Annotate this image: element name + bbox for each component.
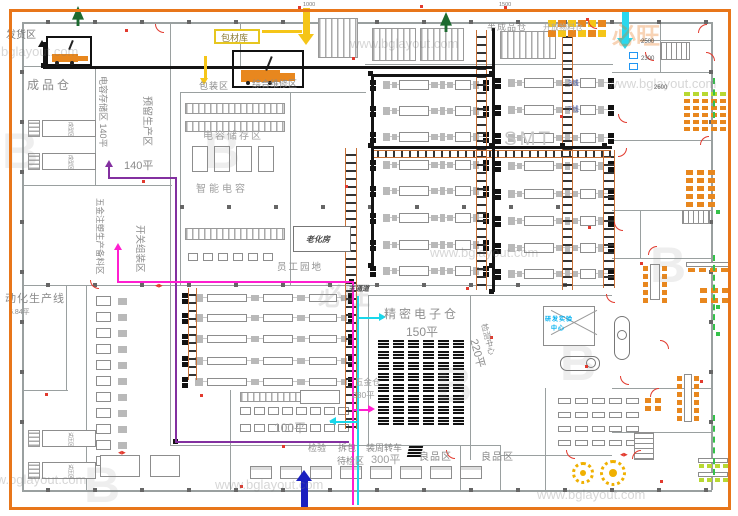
smt-machine	[392, 268, 397, 274]
green-dashed-line	[713, 415, 717, 475]
training-desk	[609, 440, 622, 446]
zone-label-open-material: 开放物料仓	[543, 24, 583, 32]
furniture-seat	[720, 92, 726, 96]
flow-node	[368, 143, 373, 148]
flow-line-black	[371, 74, 374, 267]
furniture-seat	[720, 127, 726, 131]
smt-machine	[383, 187, 390, 195]
storage-box	[423, 351, 434, 359]
feeder-cart	[495, 195, 501, 200]
feeder-cart	[495, 133, 501, 138]
wall-segment	[22, 22, 712, 24]
machine-block	[188, 253, 198, 261]
conveyor-strip	[371, 150, 611, 158]
smt-machine	[517, 191, 522, 197]
valve-marker: ◀▶	[620, 452, 630, 458]
storage-box	[423, 395, 434, 403]
door-arc-icon	[90, 280, 99, 289]
smt-machine	[392, 242, 397, 248]
storage-box	[378, 395, 389, 403]
arrow-icon	[368, 405, 379, 413]
pallet-icon	[460, 466, 482, 479]
machine-unit-label: 成型区	[60, 155, 74, 165]
smt-machine	[440, 214, 445, 222]
column-marker	[93, 20, 97, 24]
wall-segment	[612, 72, 712, 73]
storage-box	[408, 417, 419, 425]
storage-box	[393, 351, 404, 359]
door-arc-icon	[618, 114, 627, 123]
storage-box	[393, 395, 404, 403]
smt-machine	[455, 266, 471, 276]
wall-segment	[180, 92, 181, 285]
zone-label-capacitor-store: 电容储存区	[203, 132, 263, 142]
assembly-machine	[207, 357, 247, 365]
flow-node	[489, 143, 494, 148]
smt-machine	[399, 213, 429, 223]
watermark-url: www.bglayout.com	[0, 44, 170, 60]
furniture-seat	[707, 478, 712, 482]
red-marker	[345, 185, 348, 188]
door-arc-icon	[155, 24, 164, 33]
zone-label-smt: SMT	[504, 130, 553, 149]
smt-machine	[508, 190, 515, 198]
column-marker	[556, 205, 560, 209]
assembly-machine	[309, 378, 337, 386]
smt-machine	[447, 134, 453, 140]
valve-marker: ◀▶	[155, 283, 165, 289]
door-arc-icon	[620, 376, 629, 385]
forklift-icon	[70, 61, 74, 65]
furniture-seat	[677, 392, 682, 397]
stairs-icon	[682, 210, 710, 224]
flow-node	[489, 263, 494, 268]
zone-label-inspection: 检验	[308, 444, 326, 453]
smt-machine	[392, 215, 397, 221]
machine-block	[118, 394, 127, 401]
furniture-seat	[677, 376, 682, 381]
red-marker	[585, 365, 588, 368]
door-arc-icon	[606, 294, 615, 303]
column-marker	[321, 205, 325, 209]
training-desk	[575, 412, 588, 418]
worktable	[254, 424, 265, 432]
storage-box	[408, 406, 419, 414]
furniture-seat	[694, 392, 699, 397]
furniture-seat	[720, 120, 726, 124]
storage-box	[378, 351, 389, 359]
machine-block	[118, 426, 127, 433]
wall-segment	[612, 140, 712, 141]
training-desk	[592, 412, 605, 418]
column-marker	[509, 205, 513, 209]
training-desk	[558, 412, 571, 418]
smt-machine	[383, 81, 390, 89]
column-marker	[422, 488, 426, 492]
column-marker	[281, 20, 285, 24]
smt-machine	[580, 269, 596, 279]
shelf-bin	[588, 30, 596, 37]
zone-label-300sqm: 300平	[371, 455, 400, 466]
smt-machine	[598, 106, 604, 114]
smt-machine	[447, 108, 453, 114]
flow-node	[368, 263, 373, 268]
storage-box	[423, 373, 434, 381]
smt-machine	[524, 78, 554, 88]
smt-machine	[399, 80, 429, 90]
furniture-seat	[686, 202, 693, 207]
path-segment	[108, 177, 176, 179]
furniture-seat	[643, 282, 648, 287]
furniture-seat	[708, 178, 715, 183]
machine-unit-label: 成型区	[60, 122, 74, 132]
dim-2500: 2500	[641, 39, 654, 45]
zone-label-100sqm: 100平	[274, 422, 306, 434]
feeder-cart	[495, 189, 501, 194]
training-desk	[592, 426, 605, 432]
red-marker	[200, 394, 203, 397]
zone-label-capacitor-storage: 电容存储区 140平	[98, 76, 107, 148]
storage-rack	[185, 228, 285, 240]
column-marker	[516, 283, 520, 287]
assembly-machine	[297, 315, 305, 321]
smt-machine	[508, 217, 515, 225]
smt-machine	[517, 80, 522, 86]
assembly-machine	[207, 335, 247, 343]
smt-machine	[524, 189, 554, 199]
arrow-icon	[325, 417, 336, 425]
column-marker	[187, 283, 191, 287]
arrow-icon	[303, 8, 310, 34]
smt-machine	[447, 215, 453, 221]
path-segment	[175, 177, 177, 443]
machine-block	[118, 346, 127, 353]
furniture-seat	[708, 170, 715, 175]
machine-block	[96, 312, 111, 322]
smt-machine	[431, 108, 438, 114]
arrow-icon	[105, 156, 113, 167]
column-marker	[187, 488, 191, 492]
flow-node	[41, 63, 46, 68]
column-marker	[46, 283, 50, 287]
watermark-url: www.bglayout.com	[215, 477, 415, 493]
zone-label-precision-warehouse: 精密电子仓	[384, 308, 459, 320]
smt-machine	[383, 267, 390, 275]
door-arc-icon	[650, 388, 659, 397]
zone-label-staff-corner: 员工园地	[277, 263, 323, 273]
furniture-seat	[721, 268, 728, 272]
furniture-seat	[708, 186, 715, 191]
wall-segment	[22, 390, 68, 391]
red-marker	[45, 393, 48, 396]
watermark-url: www.bglayout.com	[608, 76, 738, 92]
zone-label-switch-assembly: 开关组装区	[135, 225, 145, 273]
furniture-seat	[694, 384, 699, 389]
red-marker	[352, 57, 355, 60]
furniture-seat	[697, 178, 704, 183]
logo-glyph: B	[436, 360, 496, 420]
furniture-seat	[697, 202, 704, 207]
furniture-seat	[684, 127, 690, 131]
path-segment	[262, 30, 302, 33]
smt-machine	[508, 106, 515, 114]
logo-cn-glyph: 必旺	[612, 16, 732, 46]
dim-1000: 1000	[303, 3, 315, 9]
red-marker	[298, 6, 301, 9]
furniture-seat	[723, 478, 728, 482]
watermark-url: www.bglayout.com	[350, 36, 550, 52]
red-marker	[125, 29, 128, 32]
wall-segment	[365, 64, 613, 65]
feeder-cart	[608, 139, 614, 144]
smt-machine	[399, 240, 429, 250]
conference-table	[684, 374, 692, 422]
smt-machine	[392, 108, 397, 114]
furniture-seat	[720, 113, 726, 117]
storage-box	[393, 384, 404, 392]
watermark-url: www.bglayout.com	[537, 487, 737, 503]
machine-block	[218, 253, 228, 261]
furniture-seat	[677, 384, 682, 389]
smt-machine	[580, 189, 596, 199]
furniture-seat	[684, 92, 690, 96]
wall-segment	[170, 445, 500, 446]
zone-label-reserved-production: 预留生产区	[141, 96, 151, 146]
arrow-icon	[298, 34, 314, 45]
zone-label-finished-goods: 成品仓	[27, 79, 72, 91]
feeder-cart	[495, 111, 501, 116]
zone-label-main-aisle: 主通道	[348, 286, 369, 293]
storage-box	[393, 417, 404, 425]
storage-box	[423, 362, 434, 370]
red-marker	[588, 226, 591, 229]
furniture-seat	[694, 416, 699, 421]
column-marker	[415, 205, 419, 209]
smt-machine	[440, 81, 445, 89]
smt-machine	[383, 107, 390, 115]
zone-label-hardware-warehouse: 五金仓	[355, 378, 381, 387]
assembly-machine	[207, 378, 247, 386]
smt-machine	[455, 132, 471, 142]
smt-machine	[383, 161, 390, 169]
zone-label-140sqm: 140平	[124, 161, 153, 172]
wall-segment	[290, 92, 291, 285]
machine-attachment	[28, 430, 40, 447]
smt-machine	[455, 160, 471, 170]
forklift-icon	[246, 81, 250, 85]
smt-machine	[447, 188, 453, 194]
storage-box	[393, 362, 404, 370]
storage-box	[408, 373, 419, 381]
furniture-seat	[720, 99, 726, 103]
line-label-7: 7线	[568, 106, 579, 113]
furniture-seat	[693, 127, 699, 131]
column-marker	[140, 20, 144, 24]
packing-material-store-box: 包材库	[214, 29, 260, 44]
furniture-seat	[722, 288, 729, 293]
column-marker	[234, 283, 238, 287]
training-desk	[575, 426, 588, 432]
storage-box	[378, 406, 389, 414]
furniture-seat	[711, 120, 717, 124]
green-marker	[716, 305, 720, 309]
smt-machine	[580, 216, 596, 226]
smt-machine	[517, 107, 522, 113]
machine-block	[203, 253, 213, 261]
door-arc-icon	[706, 52, 715, 61]
machine-block	[96, 344, 111, 354]
assembly-machine	[297, 379, 305, 385]
furniture-seat	[694, 376, 699, 381]
zone-label-280sqm: 280平	[352, 391, 375, 400]
assembly-machine	[309, 357, 337, 365]
factory-floor-plan: 成型区成型区试压区试压区◀▶◀▶◀▶www.bglayout.comwww.bg…	[0, 0, 738, 516]
assembly-machine	[263, 378, 293, 386]
assembly-machine	[251, 295, 259, 301]
training-desk	[592, 440, 605, 446]
assembly-machine	[297, 295, 305, 301]
conveyor-strip	[188, 288, 197, 380]
smt-machine	[447, 82, 453, 88]
smt-machine	[580, 133, 596, 143]
path-segment	[357, 296, 359, 505]
wall-segment	[180, 92, 366, 93]
furniture-seat	[677, 408, 682, 413]
zone-label-unpacking: 拆包	[338, 444, 356, 453]
storage-box	[423, 417, 434, 425]
machine-block	[118, 314, 127, 321]
furniture-seat	[693, 120, 699, 124]
zone-label-aging-room: 老化房	[306, 236, 330, 244]
logo-glyph: B	[2, 126, 62, 186]
zone-label-turnover-cart: 装周转车	[366, 444, 402, 453]
training-desk	[609, 426, 622, 432]
training-desk	[626, 398, 639, 404]
column-marker	[227, 205, 231, 209]
feeder-cart	[495, 222, 501, 227]
zone-label-hardware-molding-prep: 五金注塑生产备料区	[96, 198, 105, 275]
storage-box	[423, 406, 434, 414]
storage-box	[408, 351, 419, 359]
machine-block	[96, 296, 111, 306]
flow-node	[489, 71, 494, 76]
furniture-seat	[702, 106, 708, 110]
feeder-cart	[608, 111, 614, 116]
path-segment	[117, 246, 119, 283]
machine-block	[96, 440, 111, 450]
shelf-bin	[598, 20, 606, 27]
machine-block	[118, 298, 127, 305]
utility-box	[629, 63, 638, 70]
logo-glyph: B	[560, 338, 620, 398]
pallet-icon	[430, 466, 452, 479]
smt-machine	[580, 105, 596, 115]
machine-unit-label: 试压区	[60, 432, 74, 442]
training-desk	[609, 412, 622, 418]
furniture-seat	[699, 478, 704, 482]
flow-node	[368, 71, 373, 76]
feeder-cart	[495, 84, 501, 89]
machine-block	[118, 410, 127, 417]
column-marker	[234, 20, 238, 24]
smt-machine	[431, 215, 438, 221]
furniture-seat	[693, 92, 699, 96]
storage-box	[453, 340, 464, 348]
green-dashed-line	[713, 255, 717, 330]
training-desk	[609, 398, 622, 404]
column-marker	[462, 205, 466, 209]
furniture-seat	[643, 274, 648, 279]
red-marker	[282, 445, 285, 448]
furniture-seat	[677, 416, 682, 421]
red-marker	[586, 18, 589, 21]
training-desk	[575, 398, 588, 404]
worktable	[240, 407, 251, 415]
zone-label-pending-inspection: 待检区	[337, 457, 364, 466]
storage-box	[393, 406, 404, 414]
feeder-cart	[495, 167, 501, 172]
worktable	[324, 407, 335, 415]
wall-segment	[612, 432, 712, 433]
door-arc-icon	[700, 136, 709, 145]
training-desk	[592, 398, 605, 404]
smt-machine	[383, 133, 390, 141]
flow-node	[489, 289, 494, 294]
furniture-seat	[684, 113, 690, 117]
smt-machine	[455, 80, 471, 90]
column-marker	[469, 488, 473, 492]
furniture-seat	[702, 99, 708, 103]
round-table	[609, 469, 617, 477]
utility-box	[629, 52, 638, 59]
furniture-seat	[697, 194, 704, 199]
door-arc-icon	[566, 450, 575, 459]
storage-box	[378, 362, 389, 370]
line-label-3: 3线	[568, 80, 579, 87]
smt-machine	[440, 161, 445, 169]
smt-machine	[455, 106, 471, 116]
machine-block	[96, 376, 111, 386]
furniture-seat	[693, 99, 699, 103]
watermark-url: www.bglayout.com	[430, 245, 630, 261]
feeder-cart	[495, 275, 501, 280]
smt-machine	[392, 82, 397, 88]
zone-label-rd-lab-line1: 研发实验	[545, 317, 573, 323]
zone-label-semi-finished: 半成品仓	[487, 23, 527, 32]
smt-machine	[580, 78, 596, 88]
assembly-machine	[297, 358, 305, 364]
feeder-cart	[495, 139, 501, 144]
logo-glyph: B	[84, 460, 144, 516]
wall-segment	[22, 285, 612, 286]
storage-box	[393, 373, 404, 381]
feeder-cart	[495, 269, 501, 274]
storage-box	[423, 340, 434, 348]
red-marker	[142, 180, 145, 183]
wall-segment	[230, 390, 231, 490]
round-table	[580, 470, 586, 476]
assembly-machine	[251, 358, 259, 364]
furniture-seat	[711, 127, 717, 131]
smt-machine	[431, 188, 438, 194]
furniture-seat	[702, 92, 708, 96]
zone-label-smart-capacitor: 智能电容	[196, 185, 248, 195]
door-arc-icon	[660, 340, 669, 349]
furniture-seat	[693, 106, 699, 110]
furniture-seat	[643, 290, 648, 295]
watermark-url: www.bglayout.com	[0, 472, 178, 488]
arrow-icon	[114, 239, 122, 250]
